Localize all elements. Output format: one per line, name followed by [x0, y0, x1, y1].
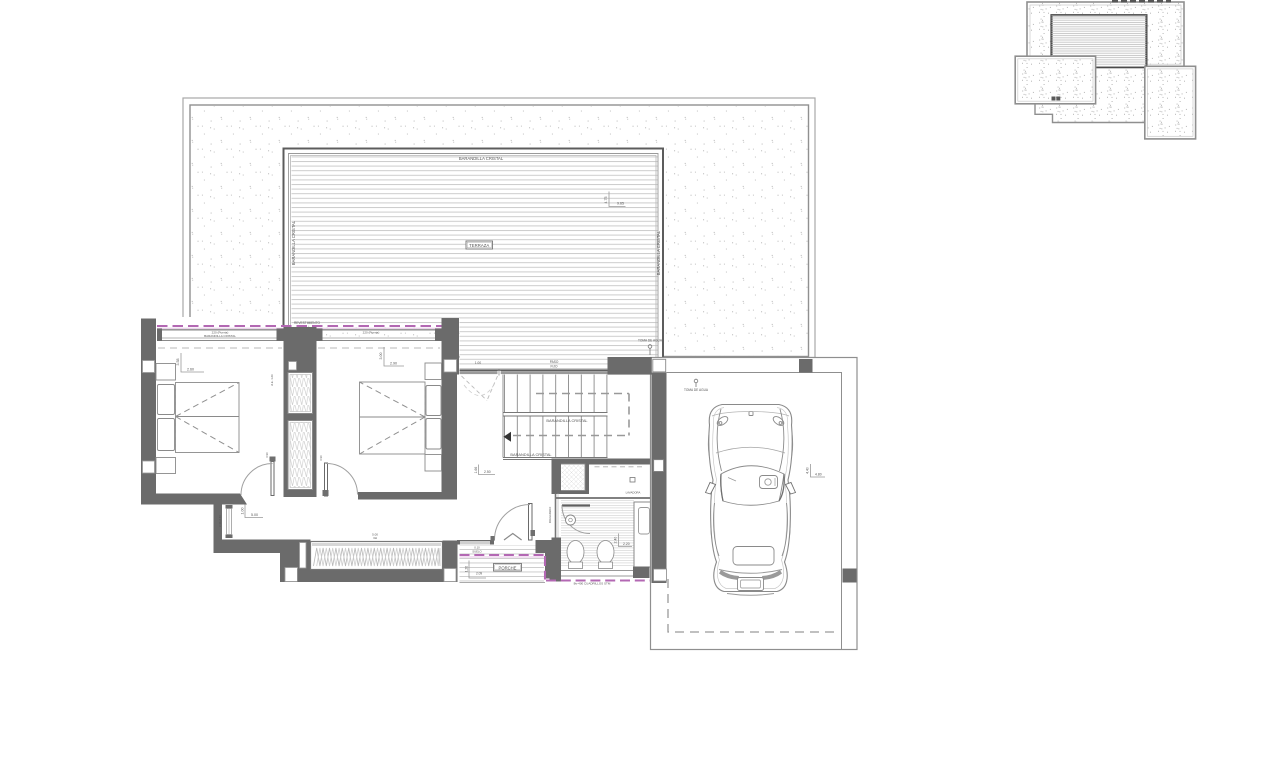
svg-text:0.90: 0.90	[265, 452, 269, 458]
svg-text:BARANDILLA CRISTAL: BARANDILLA CRISTAL	[546, 418, 588, 423]
svg-text:4.75: 4.75	[604, 197, 608, 204]
svg-text:LAVADORA: LAVADORA	[626, 491, 641, 495]
svg-text:3.00: 3.00	[379, 353, 383, 360]
svg-text:TERRAZA: TERRAZA	[469, 243, 489, 248]
svg-text:PORCHE: PORCHE	[499, 565, 517, 570]
svg-text:220 (Puerta): 220 (Puerta)	[363, 330, 380, 334]
svg-text:BARANDILLA CRISTAL: BARANDILLA CRISTAL	[459, 156, 504, 161]
svg-text:2.09: 2.09	[476, 572, 482, 576]
svg-text:1.00: 1.00	[475, 361, 481, 365]
svg-text:TOMA DE AGUA: TOMA DE AGUA	[638, 339, 663, 343]
svg-text:SUELO: SUELO	[472, 549, 482, 553]
svg-text:Bv-400 CUADRILLOS STM: Bv-400 CUADRILLOS STM	[574, 582, 611, 586]
svg-text:2.60: 2.60	[187, 368, 194, 372]
svg-text:2.20: 2.20	[623, 542, 630, 546]
svg-text:BARANDILLA CRISTAL: BARANDILLA CRISTAL	[204, 334, 236, 338]
svg-text:BARANDILLA CRISTAL: BARANDILLA CRISTAL	[510, 452, 552, 457]
svg-text:2.10+0.40: 2.10+0.40	[218, 515, 222, 527]
svg-text:2.40: 2.40	[614, 537, 618, 544]
svg-text:2.90: 2.90	[390, 362, 397, 366]
svg-text:4.80: 4.80	[815, 473, 822, 477]
svg-text:1.00: 1.00	[241, 508, 245, 515]
svg-text:5.00: 5.00	[251, 513, 258, 517]
svg-text:BARANDILLA CRISTAL: BARANDILLA CRISTAL	[291, 220, 296, 265]
svg-text:1.66: 1.66	[474, 467, 478, 474]
svg-text:FREGADERO: FREGADERO	[548, 507, 552, 523]
svg-text:A.E. 1.66: A.E. 1.66	[270, 374, 274, 386]
svg-text:9.65: 9.65	[617, 202, 624, 206]
svg-text:FIJO: FIJO	[551, 364, 558, 368]
svg-text:0.90: 0.90	[319, 455, 323, 461]
svg-text:TOMA DE AGUA: TOMA DE AGUA	[684, 388, 709, 392]
svg-text:1.20: 1.20	[465, 566, 469, 572]
svg-text:2.50: 2.50	[484, 470, 491, 474]
svg-text:3.58: 3.58	[176, 359, 180, 366]
svg-text:3H: 3H	[373, 536, 377, 540]
svg-text:BARANDILLA CRISTAL: BARANDILLA CRISTAL	[656, 230, 661, 275]
svg-text:REVESTIMIENTO: REVESTIMIENTO	[294, 321, 320, 325]
svg-text:4.40: 4.40	[806, 467, 810, 474]
